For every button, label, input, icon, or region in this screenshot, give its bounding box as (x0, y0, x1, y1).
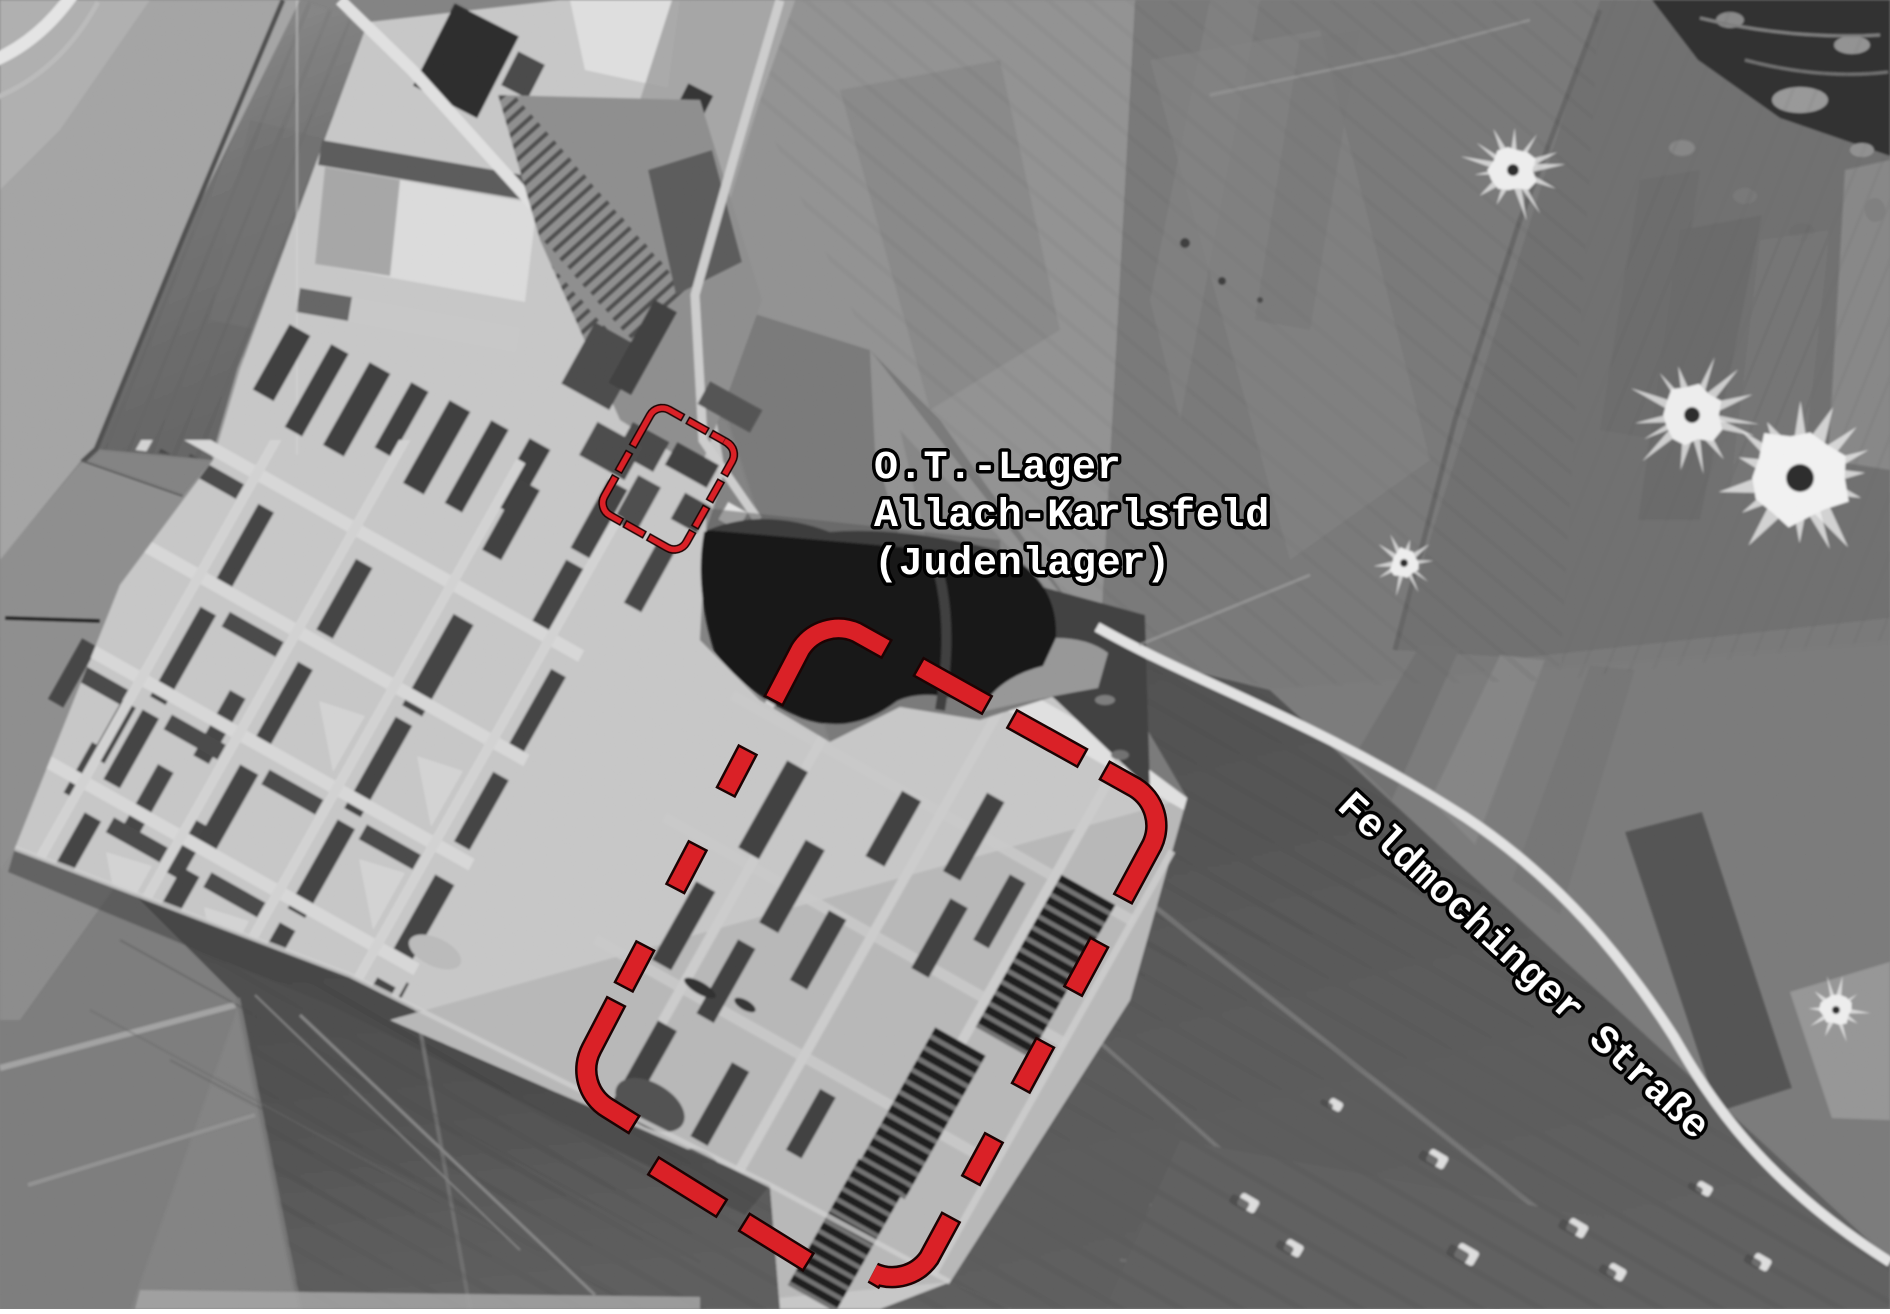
svg-text:Allach-Karlsfeld: Allach-Karlsfeld (874, 494, 1270, 539)
svg-text:O.T.-Lager: O.T.-Lager (874, 446, 1122, 491)
svg-text:(Judenlager): (Judenlager) (874, 542, 1171, 587)
